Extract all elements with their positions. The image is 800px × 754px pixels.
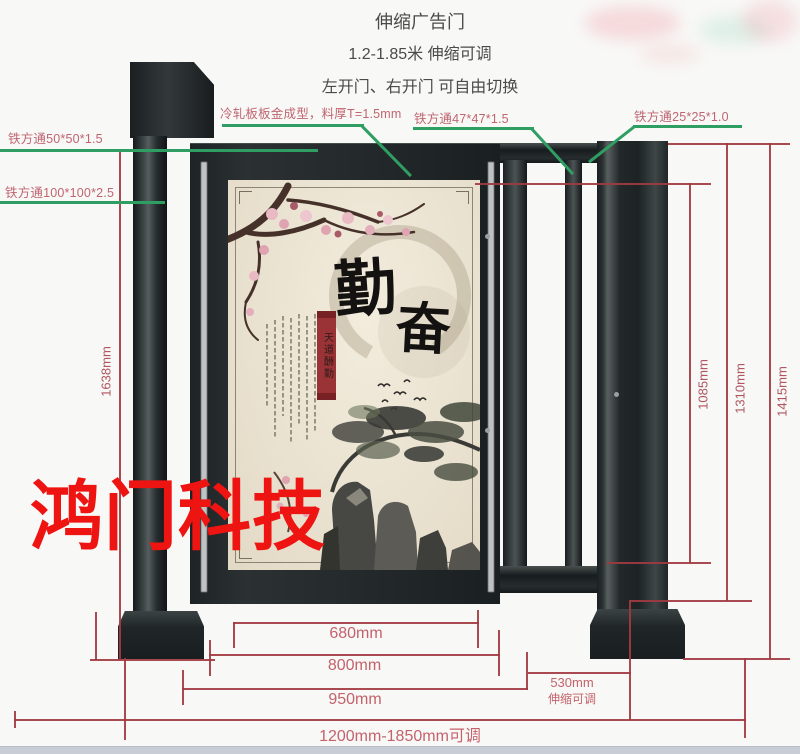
dim-line-680 bbox=[233, 622, 479, 624]
product-subtitle-opening: 左开门、右开门 可自由切换 bbox=[260, 73, 580, 97]
dim-conn-1415-bottom bbox=[683, 658, 790, 660]
dim-tick bbox=[14, 711, 16, 728]
ink-rocks bbox=[320, 482, 480, 570]
pine-branch bbox=[332, 402, 480, 492]
dim-label-530: 530mm bbox=[520, 675, 624, 690]
dim-tick bbox=[233, 622, 235, 648]
label-square-tube-100: 铁方通100*100*2.5 bbox=[5, 182, 114, 201]
photo-bottom-edge bbox=[0, 746, 800, 754]
dim-label-1415: 1415mm bbox=[775, 350, 790, 434]
dim-label-530-note: 伸缩可调 bbox=[520, 690, 624, 707]
artifact-smudge bbox=[742, 0, 797, 42]
calligraphy-fen: 奋 bbox=[394, 283, 453, 366]
poem-columns bbox=[264, 314, 320, 446]
leader-line-tube47 bbox=[413, 127, 534, 130]
label-square-tube-50: 铁方通50*50*1.5 bbox=[8, 128, 103, 147]
brand-watermark: 鸿门科技 bbox=[30, 456, 326, 566]
hinge-bolt bbox=[485, 234, 490, 239]
dim-tick bbox=[477, 610, 479, 648]
dim-label-800: 800mm bbox=[209, 657, 500, 675]
dim-conn-1085-bottom bbox=[607, 562, 711, 564]
dim-conn-1638-bottom bbox=[90, 659, 215, 661]
product-subtitle-range: 1.2-1.85米 伸缩可调 bbox=[260, 40, 580, 64]
dim-label-1638: 1638mm bbox=[99, 330, 114, 414]
calligraphy-qin: 勤 bbox=[331, 236, 399, 330]
label-square-tube-47: 铁方通47*47*1.5 bbox=[414, 108, 509, 127]
leader-line-tube50 bbox=[0, 149, 318, 152]
motor-housing-box bbox=[130, 62, 214, 138]
dim-label-total-range: 1200mm-1850mm可调 bbox=[40, 722, 760, 746]
label-square-tube-25: 铁方通25*25*1.0 bbox=[634, 106, 729, 125]
dim-line-1638 bbox=[119, 152, 121, 660]
dim-tick bbox=[498, 630, 500, 676]
dim-line-800 bbox=[209, 654, 500, 656]
seal-banner-text: 天道酬勤 bbox=[322, 332, 332, 380]
telescopic-bar-2 bbox=[565, 160, 582, 593]
leader-line-plate bbox=[222, 124, 364, 127]
dim-line-1415 bbox=[769, 143, 771, 659]
artifact-smudge bbox=[585, 6, 680, 40]
right-pedestal-base bbox=[590, 609, 685, 659]
dim-line-950 bbox=[182, 688, 528, 690]
dim-label-1085: 1085mm bbox=[696, 343, 711, 427]
dim-line-1310 bbox=[726, 143, 728, 601]
dim-tick bbox=[526, 652, 528, 690]
dim-tick bbox=[209, 640, 211, 676]
frame-highlight bbox=[488, 162, 494, 592]
dim-label-950: 950mm bbox=[182, 691, 528, 709]
dim-label-1310: 1310mm bbox=[733, 347, 748, 431]
dim-line-1085 bbox=[689, 183, 691, 563]
leader-line-tube25 bbox=[633, 125, 742, 128]
dim-tick bbox=[182, 670, 184, 705]
lock-keyhole bbox=[485, 428, 490, 433]
dim-conn-top-right bbox=[668, 143, 790, 145]
left-pedestal-base bbox=[118, 611, 204, 659]
product-diagram-canvas: 伸缩广告门 1.2-1.85米 伸缩可调 左开门、右开门 可自由切换 bbox=[0, 0, 800, 754]
right-pole bbox=[597, 141, 668, 612]
dim-conn-1310-bottom bbox=[630, 600, 752, 602]
dim-conn-top-1085 bbox=[475, 183, 711, 185]
dim-ext-line bbox=[629, 600, 631, 720]
dim-ext-line bbox=[744, 658, 746, 738]
dim-ext-line bbox=[95, 612, 97, 660]
leader-line-tube100 bbox=[0, 201, 165, 204]
bird-strokes bbox=[378, 380, 426, 410]
dim-label-680: 680mm bbox=[233, 625, 479, 643]
artifact-smudge bbox=[640, 44, 700, 64]
telescopic-bar-1 bbox=[503, 160, 527, 593]
dim-line-530 bbox=[528, 672, 631, 674]
label-cold-rolled-plate: 冷轧板板金成型，料厚T=1.5mm bbox=[220, 103, 402, 122]
pole-bolt bbox=[614, 392, 619, 397]
dim-ext-line bbox=[124, 658, 126, 740]
product-title: 伸缩广告门 bbox=[260, 8, 580, 34]
